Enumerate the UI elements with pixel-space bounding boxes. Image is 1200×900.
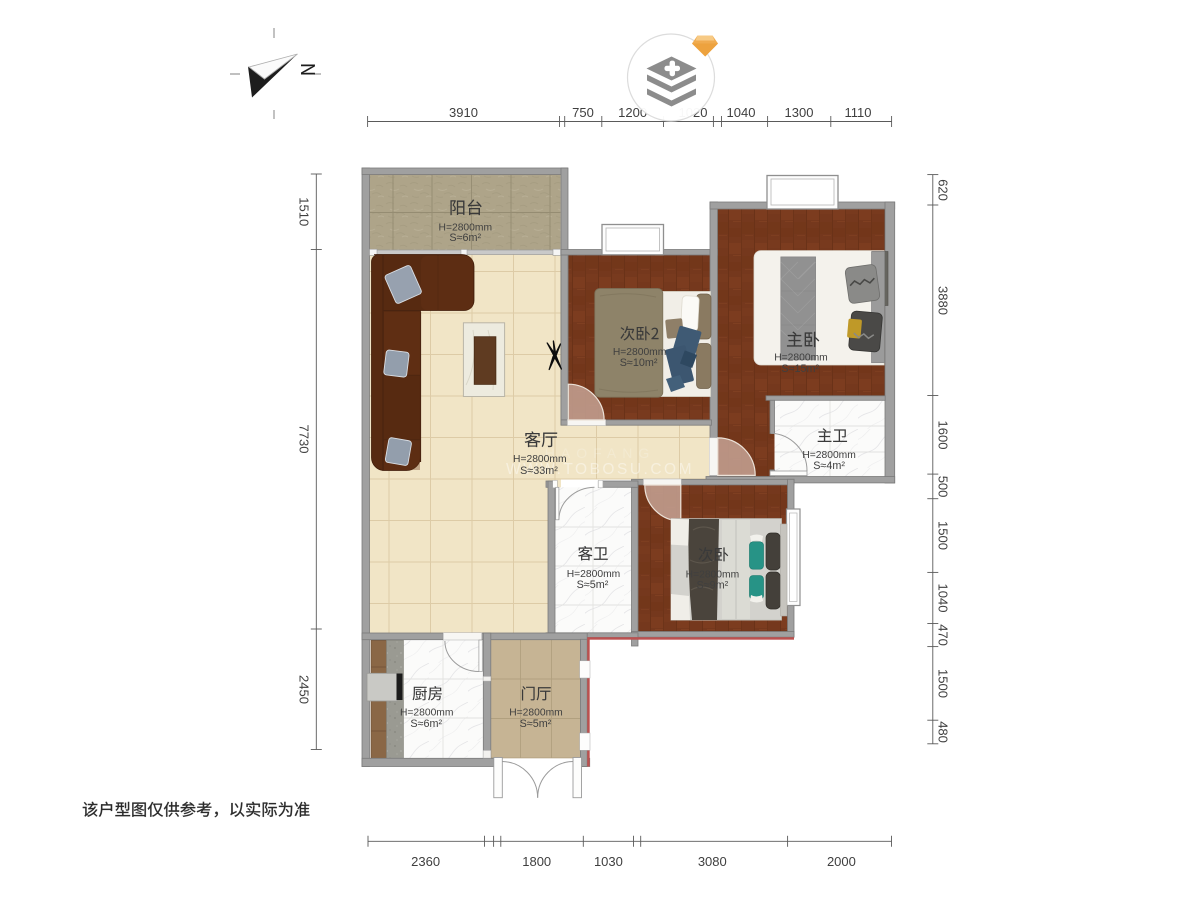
svg-text:1300: 1300 bbox=[785, 105, 814, 120]
svg-text:H=2800mm: H=2800mm bbox=[513, 454, 567, 465]
svg-text:7730: 7730 bbox=[297, 425, 312, 454]
svg-text:S≈10m²: S≈10m² bbox=[620, 357, 658, 369]
svg-text:H=2800mm: H=2800mm bbox=[400, 708, 454, 719]
svg-text:1040: 1040 bbox=[936, 584, 951, 613]
svg-text:S≈33m²: S≈33m² bbox=[520, 465, 558, 477]
svg-text:620: 620 bbox=[936, 179, 951, 201]
svg-text:1040: 1040 bbox=[727, 105, 756, 120]
svg-text:S≈4m²: S≈4m² bbox=[813, 460, 845, 472]
svg-text:H=2800mm: H=2800mm bbox=[774, 352, 828, 363]
svg-text:1500: 1500 bbox=[936, 521, 951, 550]
svg-text:1030: 1030 bbox=[594, 854, 623, 869]
svg-text:1600: 1600 bbox=[936, 421, 951, 450]
svg-text:1110: 1110 bbox=[845, 105, 872, 120]
svg-text:2360: 2360 bbox=[411, 854, 440, 869]
svg-text:H=2800mm: H=2800mm bbox=[802, 450, 856, 461]
svg-text:S≈5m²: S≈5m² bbox=[520, 718, 552, 730]
svg-text:1800: 1800 bbox=[522, 854, 551, 869]
svg-text:S≈9m²: S≈9m² bbox=[697, 580, 729, 592]
svg-text:480: 480 bbox=[936, 721, 951, 743]
svg-text:750: 750 bbox=[572, 105, 594, 120]
svg-text:2000: 2000 bbox=[827, 854, 856, 869]
svg-text:3880: 3880 bbox=[936, 286, 951, 315]
svg-text:470: 470 bbox=[936, 624, 951, 646]
svg-text:S≈5m²: S≈5m² bbox=[577, 579, 609, 591]
svg-text:S≈6m²: S≈6m² bbox=[449, 232, 481, 244]
svg-text:H=2800mm: H=2800mm bbox=[509, 708, 563, 719]
svg-text:S≈15m²: S≈15m² bbox=[781, 363, 819, 375]
svg-text:3910: 3910 bbox=[449, 105, 478, 120]
svg-text:500: 500 bbox=[936, 476, 951, 498]
svg-text:1500: 1500 bbox=[936, 669, 951, 698]
svg-text:3080: 3080 bbox=[698, 854, 727, 869]
svg-text:1510: 1510 bbox=[297, 197, 312, 226]
svg-text:2450: 2450 bbox=[297, 675, 312, 704]
svg-text:S≈6m²: S≈6m² bbox=[410, 718, 442, 730]
